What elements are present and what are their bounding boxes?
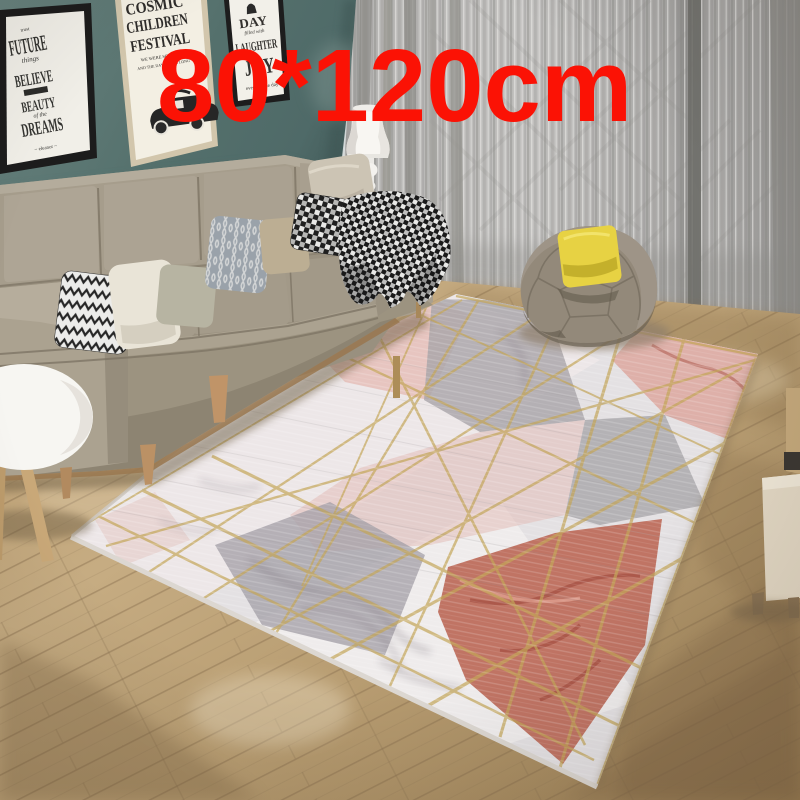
svg-text:80*120cm: 80*120cm [157,28,632,143]
